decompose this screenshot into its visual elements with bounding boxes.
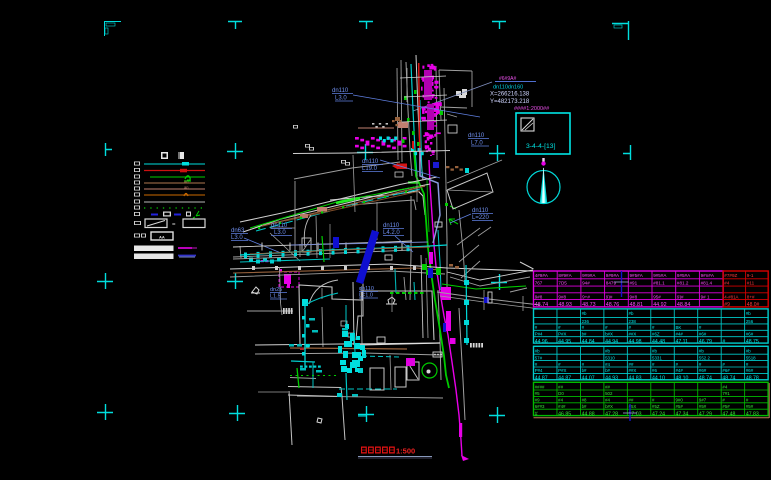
svg-text:9#8: 9#8 <box>558 294 566 299</box>
svg-text:44.48: 44.48 <box>652 339 665 345</box>
svg-text:48.78: 48.78 <box>746 376 759 382</box>
svg-text:b#X: b#X <box>605 332 613 337</box>
svg-text:#6: #6 <box>652 368 657 373</box>
svg-text:5331: 5331 <box>652 355 662 360</box>
svg-text:#6#: #6# <box>746 332 754 337</box>
svg-text:44.10: 44.10 <box>652 376 665 382</box>
svg-text:#b: #b <box>582 311 587 316</box>
svg-text:44.92: 44.92 <box>653 302 667 308</box>
svg-text:48.84: 48.84 <box>677 302 691 308</box>
svg-text:L1.5: L1.5 <box>270 294 281 300</box>
svg-text:#7#9Z: #7#9Z <box>724 273 737 278</box>
svg-text:44.98: 44.98 <box>629 339 642 345</box>
svg-text:##: ## <box>629 362 634 367</box>
svg-text:#b: #b <box>629 311 634 316</box>
svg-text:44.83: 44.83 <box>629 376 642 382</box>
svg-text:9# 1: 9# 1 <box>701 294 710 299</box>
svg-text:#9: #9 <box>724 302 730 308</box>
svg-text:#6#: #6# <box>699 332 707 337</box>
svg-text:95#: 95# <box>653 294 661 299</box>
svg-text:#81.2: #81.2 <box>677 281 689 286</box>
svg-text:P#X: P#X <box>558 368 566 373</box>
svg-text:##X: ##X <box>629 332 637 337</box>
svg-text:44.94: 44.94 <box>605 339 618 345</box>
svg-text:9#8: 9#8 <box>630 294 638 299</box>
svg-text:##: ## <box>605 384 610 389</box>
svg-text:#b: #b <box>746 348 751 353</box>
svg-text:9)#: 9)# <box>606 294 613 299</box>
svg-text:8+#: 8+# <box>747 294 755 299</box>
svg-text:236: 236 <box>582 319 590 324</box>
svg-text:9#n#A: 9#n#A <box>701 273 715 278</box>
svg-text:9-1: 9-1 <box>747 273 754 278</box>
svg-text:48.0#: 48.0# <box>747 302 760 308</box>
svg-text:#4: #4 <box>558 398 563 403</box>
svg-text:#4#: #4# <box>675 368 683 373</box>
svg-text:#5#: #5# <box>699 404 707 409</box>
svg-text:P#4: P#4 <box>535 368 543 373</box>
svg-text:an: an <box>184 185 188 190</box>
svg-text:44.93: 44.93 <box>605 376 618 382</box>
svg-text:#6#: #6# <box>746 368 754 373</box>
svg-text:44.88: 44.88 <box>582 411 595 417</box>
svg-text:8479: 8479 <box>606 281 617 286</box>
svg-text:#8: #8 <box>582 398 587 403</box>
svg-text:9#7: 9#7 <box>699 398 707 403</box>
svg-text:94#: 94# <box>582 281 590 286</box>
svg-text:#4: #4 <box>724 281 730 286</box>
svg-text:b#: b# <box>582 368 587 373</box>
svg-text:552.2: 552.2 <box>699 355 711 360</box>
svg-text:4-#81A: 4-#81A <box>724 294 738 299</box>
svg-text:b#X: b#X <box>605 404 613 409</box>
svg-text:47.48: 47.48 <box>722 411 735 417</box>
svg-text:9#5#A: 9#5#A <box>653 273 667 278</box>
svg-text:b#: b# <box>605 368 610 373</box>
svg-text:#: # <box>722 339 725 345</box>
svg-text:44.84: 44.84 <box>582 339 595 345</box>
svg-text:9#9#A: 9#9#A <box>582 273 596 278</box>
svg-text:####: #### <box>535 384 545 389</box>
svg-text:5310: 5310 <box>605 355 615 360</box>
svg-text:48.81: 48.81 <box>630 302 644 308</box>
svg-text:9+#: 9+# <box>582 294 590 299</box>
svg-text:X=266216.138: X=266216.138 <box>490 92 530 98</box>
svg-text:7D5: 7D5 <box>558 281 567 286</box>
svg-text:1:500: 1:500 <box>396 447 415 456</box>
svg-text:##X: ##X <box>629 368 637 373</box>
svg-text:5518: 5518 <box>746 355 756 360</box>
svg-text:dn110: dn110 <box>359 286 374 292</box>
svg-text:#: # <box>535 411 538 417</box>
svg-text:##: ## <box>629 398 634 403</box>
svg-text:an: an <box>184 179 188 184</box>
svg-text:44.95: 44.95 <box>558 339 571 345</box>
svg-text:48.75: 48.75 <box>746 339 759 345</box>
svg-text:#4: #4 <box>605 362 610 367</box>
svg-text:#91: #91 <box>630 281 638 286</box>
svg-text:Y=482173.218: Y=482173.218 <box>490 99 530 105</box>
svg-text:#5#: #5# <box>675 404 683 409</box>
svg-text:47.34: 47.34 <box>675 411 688 417</box>
svg-text:dn110dn160: dn110dn160 <box>493 85 523 91</box>
svg-text:47.24: 47.24 <box>652 411 665 417</box>
svg-text:#11: #11 <box>747 281 755 286</box>
svg-text:48.73: 48.73 <box>582 302 596 308</box>
svg-text:#4: #4 <box>722 384 727 389</box>
svg-text:238: 238 <box>629 319 637 324</box>
svg-text:9#9#A: 9#9#A <box>606 273 620 278</box>
svg-text:#6#: #6# <box>699 368 707 373</box>
svg-text:#4#: #4# <box>558 404 566 409</box>
svg-text:6##3: 6##3 <box>535 404 545 409</box>
svg-text:####1:2000##: ####1:2000## <box>514 106 550 112</box>
svg-text:44.96: 44.96 <box>535 339 548 345</box>
svg-text:#4: #4 <box>605 398 610 403</box>
svg-text:767: 767 <box>535 281 543 286</box>
svg-text:48.74: 48.74 <box>699 376 712 382</box>
svg-text:9)#: 9)# <box>677 294 684 299</box>
svg-text:#5#: #5# <box>746 404 754 409</box>
svg-text:47.11: 47.11 <box>675 339 688 345</box>
svg-text:44.07: 44.07 <box>582 376 595 382</box>
svg-text:dn25: dn25 <box>270 287 282 293</box>
svg-text:D0: D0 <box>558 391 564 396</box>
svg-text:#5#: #5# <box>722 404 730 409</box>
svg-text:#6Z: #6Z <box>652 332 660 337</box>
svg-text:#b: #b <box>652 348 657 353</box>
svg-text:8#9#A: 8#9#A <box>558 273 572 278</box>
svg-text:44.87: 44.87 <box>535 376 548 382</box>
svg-text:AA: AA <box>159 235 165 240</box>
svg-text:#b: #b <box>746 311 751 316</box>
svg-text:b#: b# <box>582 404 587 409</box>
svg-text:##: ## <box>558 384 563 389</box>
svg-text:#9: #9 <box>535 398 540 403</box>
svg-text:48.76: 48.76 <box>606 302 620 308</box>
svg-text:3-4-4-[13]: 3-4-4-[13] <box>526 143 556 150</box>
svg-text:47.29: 47.29 <box>699 411 712 417</box>
svg-text:7#1: 7#1 <box>722 391 730 396</box>
svg-text:48.74: 48.74 <box>535 302 549 308</box>
svg-text:#b: #b <box>699 348 704 353</box>
svg-text:47.83: 47.83 <box>746 411 759 417</box>
svg-text:57#: 57# <box>535 355 543 360</box>
svg-text:#6#: #6# <box>722 368 730 373</box>
svg-text:256: 256 <box>746 319 754 324</box>
svg-text:4#9#A: 4#9#A <box>535 273 549 278</box>
svg-text:48.74: 48.74 <box>722 376 735 382</box>
svg-text:#5: #5 <box>535 391 540 396</box>
svg-text:46.79: 46.79 <box>699 339 712 345</box>
svg-text:46.85: 46.85 <box>558 411 571 417</box>
svg-text:#81.1: #81.1 <box>653 281 665 286</box>
svg-text:502: 502 <box>605 391 613 396</box>
svg-text:9#8: 9#8 <box>535 294 543 299</box>
svg-text:9#5#A: 9#5#A <box>630 273 644 278</box>
svg-text:9#0: 9#0 <box>675 398 683 403</box>
svg-text:9#5#A: 9#5#A <box>677 273 691 278</box>
svg-text:48.10: 48.10 <box>675 376 688 382</box>
svg-text:#81.4: #81.4 <box>701 281 713 286</box>
svg-text:P#4: P#4 <box>535 332 543 337</box>
svg-text:BK: BK <box>675 325 681 330</box>
svg-text:#4#: #4# <box>675 332 683 337</box>
svg-text:47.28: 47.28 <box>605 411 618 417</box>
svg-text:b#: b# <box>582 332 587 337</box>
svg-text:44.87: 44.87 <box>558 376 571 382</box>
svg-text:#5Z: #5Z <box>652 404 660 409</box>
svg-text:#b: #b <box>535 348 540 353</box>
svg-text:L=1.0: L=1.0 <box>359 293 373 299</box>
svg-text:#b: #b <box>605 348 610 353</box>
svg-text:=: = <box>172 222 176 228</box>
svg-text:48.93: 48.93 <box>558 302 572 308</box>
svg-text:P#X: P#X <box>558 332 566 337</box>
